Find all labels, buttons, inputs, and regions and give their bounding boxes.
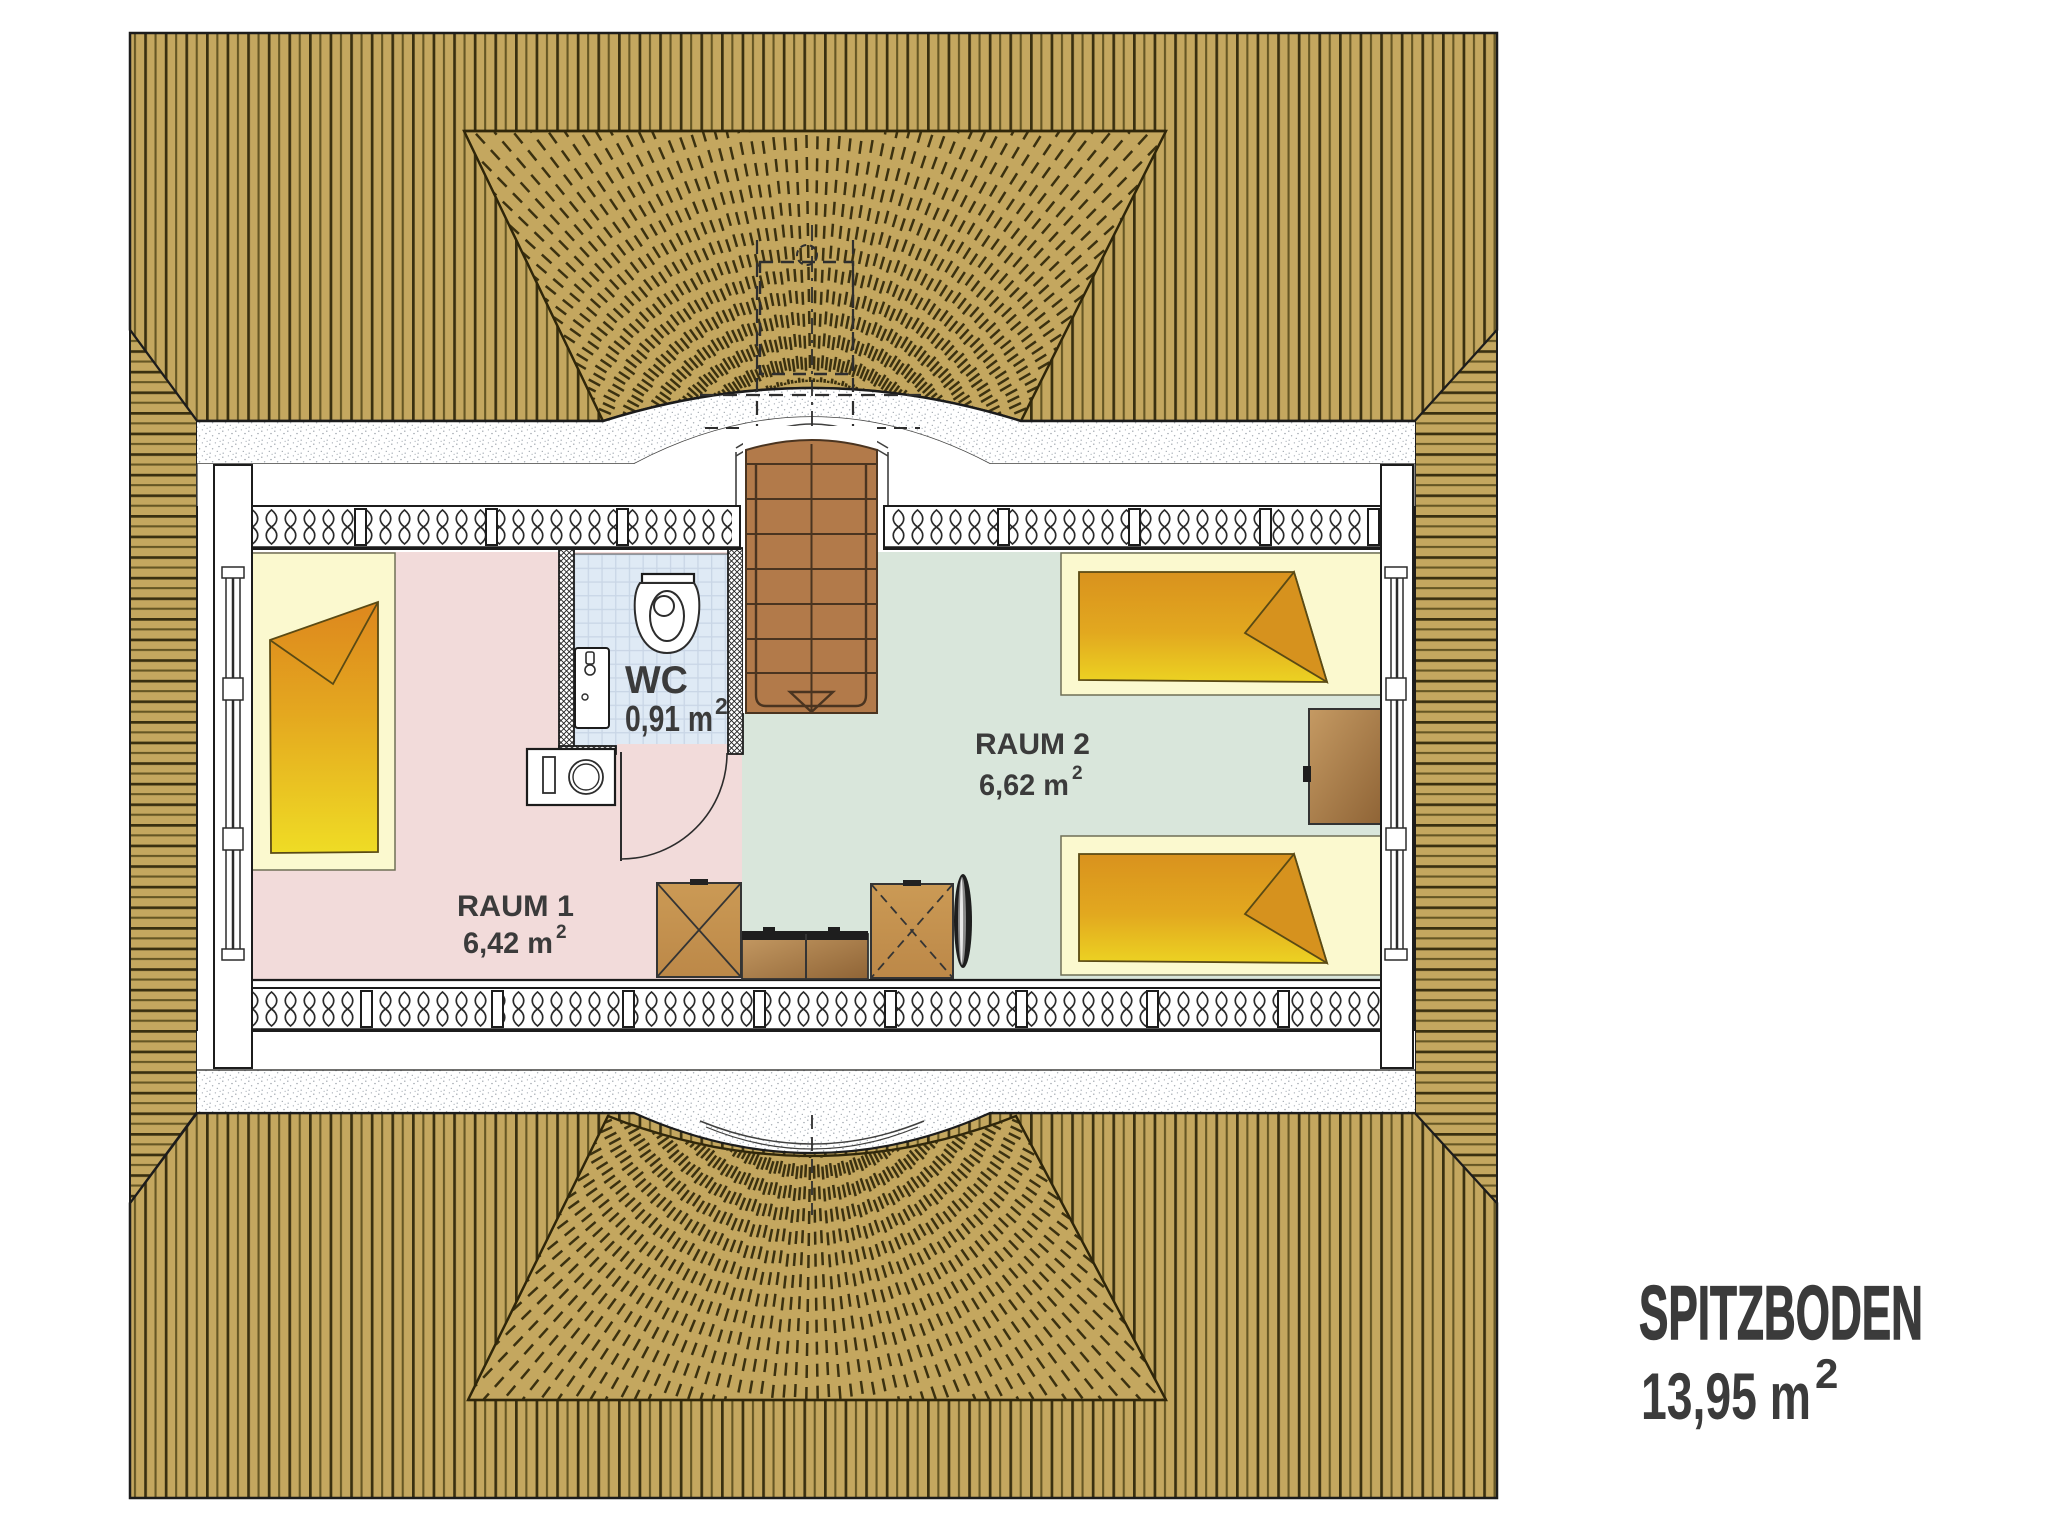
svg-text:2: 2 [556,922,567,943]
svg-text:RAUM 1: RAUM 1 [457,890,574,923]
svg-text:0,91 m: 0,91 m [625,698,713,739]
svg-text:2: 2 [1815,1350,1838,1397]
svg-text:RAUM 2: RAUM 2 [975,728,1090,761]
svg-text:2: 2 [715,693,728,719]
svg-text:SPITZBODEN: SPITZBODEN [1639,1271,1923,1356]
svg-text:6,42 m: 6,42 m [463,927,553,960]
svg-text:2: 2 [1072,763,1083,784]
svg-text:13,95 m: 13,95 m [1641,1359,1811,1433]
svg-text:6,62 m: 6,62 m [979,769,1069,802]
svg-text:WC: WC [625,659,688,702]
